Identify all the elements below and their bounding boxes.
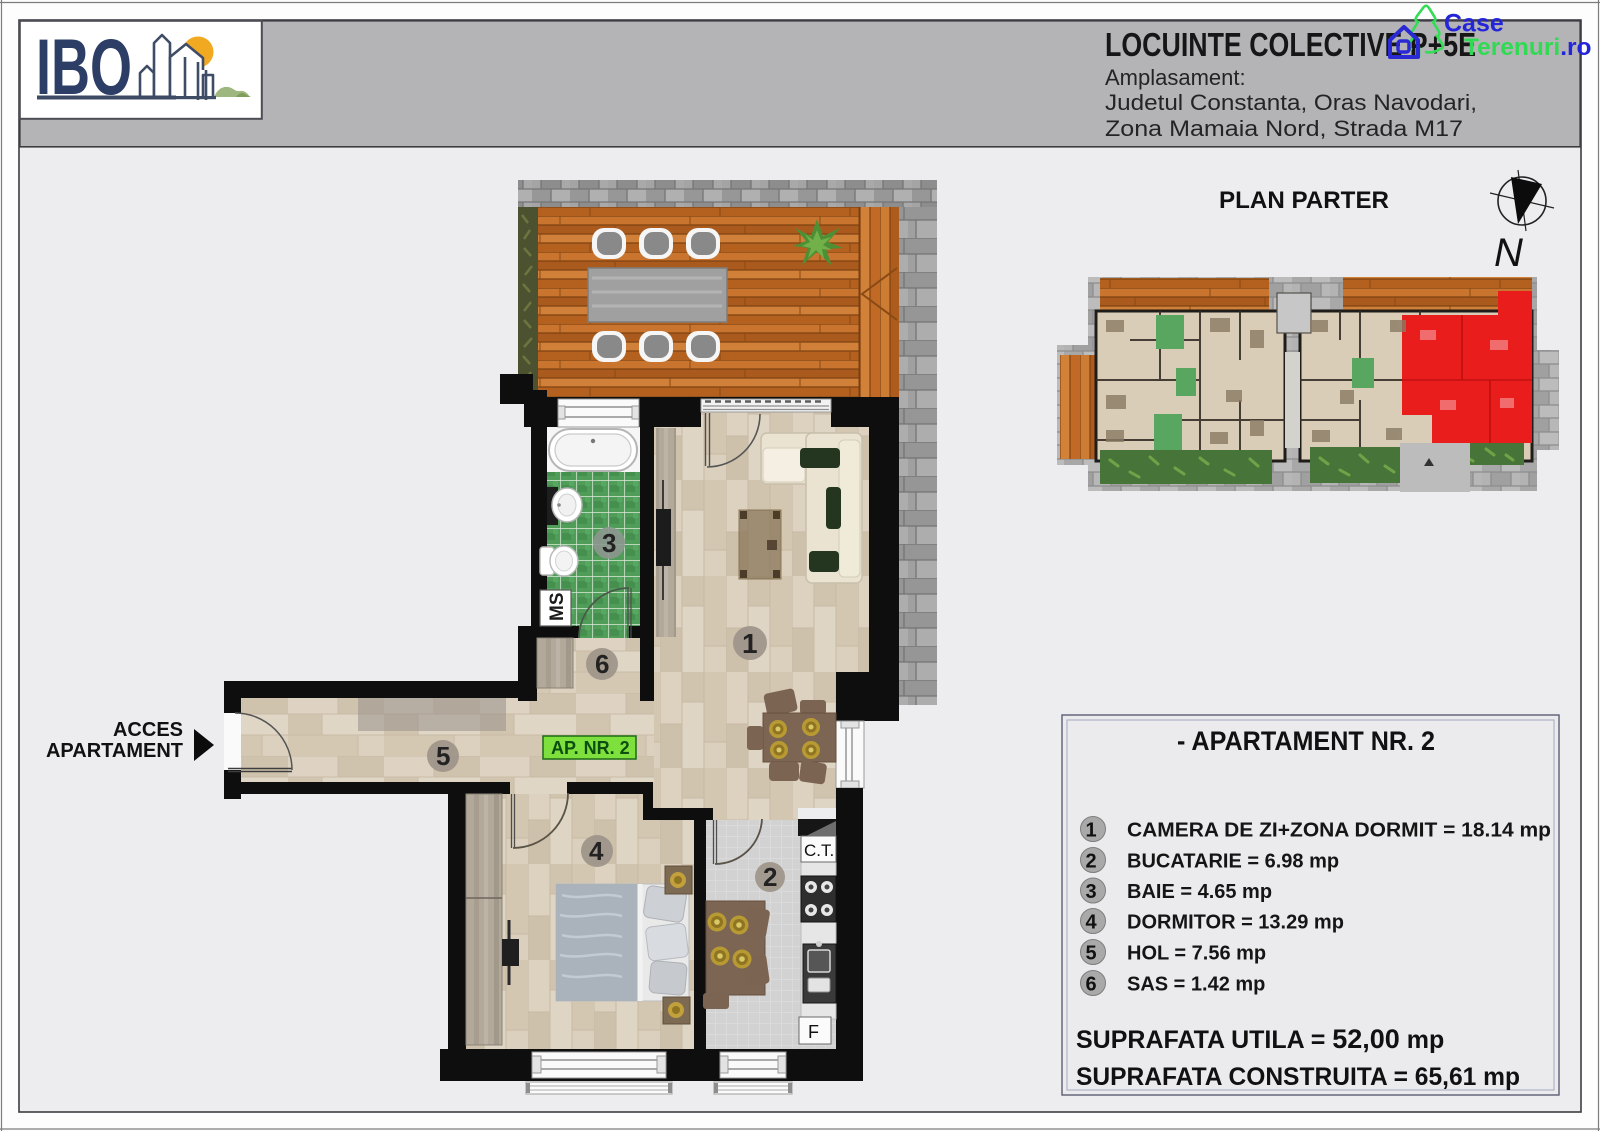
svg-text:AP. NR. 2: AP. NR. 2 [551, 738, 630, 758]
svg-text:PLAN PARTER: PLAN PARTER [1219, 187, 1389, 214]
svg-text:6: 6 [595, 649, 609, 679]
svg-text:CAMERA DE ZI+ZONA DORMIT = 18.: CAMERA DE ZI+ZONA DORMIT = 18.14 mp [1127, 820, 1551, 842]
svg-text:2: 2 [1086, 851, 1097, 873]
svg-text:1: 1 [742, 628, 758, 659]
svg-text:APARTAMENT: APARTAMENT [46, 740, 183, 762]
svg-text:2: 2 [763, 862, 777, 892]
svg-text:SUPRAFATA CONSTRUITA = 65,61 m: SUPRAFATA CONSTRUITA = 65,61 mp [1076, 1063, 1520, 1091]
svg-text:SAS = 1.42 mp: SAS = 1.42 mp [1127, 974, 1265, 996]
svg-text:DORMITOR = 13.29 mp: DORMITOR = 13.29 mp [1127, 912, 1344, 934]
svg-text:5: 5 [1086, 943, 1097, 965]
svg-text:- APARTAMENT NR. 2: - APARTAMENT NR. 2 [1177, 726, 1435, 756]
svg-text:4: 4 [589, 836, 604, 866]
svg-text:3: 3 [602, 528, 616, 558]
svg-text:BAIE = 4.65 mp: BAIE = 4.65 mp [1127, 881, 1272, 903]
svg-text:1: 1 [1086, 820, 1097, 842]
svg-text:MS: MS [547, 593, 568, 622]
svg-text:3: 3 [1086, 881, 1097, 903]
svg-text:ACCES: ACCES [113, 719, 183, 741]
svg-text:Zona Mamaia Nord, Strada M17: Zona Mamaia Nord, Strada M17 [1105, 116, 1463, 141]
svg-text:LOCUINTE COLECTIVE P+5E: LOCUINTE COLECTIVE P+5E [1105, 26, 1476, 63]
svg-text:Terenuri.ro: Terenuri.ro [1464, 34, 1592, 61]
svg-text:SUPRAFATA UTILA = 52,00 mp: SUPRAFATA UTILA = 52,00 mp [1076, 1024, 1444, 1054]
svg-text:5: 5 [436, 741, 450, 771]
svg-text:C.T.: C.T. [804, 841, 834, 860]
svg-text:BUCATARIE = 6.98 mp: BUCATARIE = 6.98 mp [1127, 851, 1339, 873]
svg-text:4: 4 [1086, 912, 1098, 934]
svg-text:N: N [1494, 231, 1523, 275]
svg-text:Judetul Constanta, Oras Navoda: Judetul Constanta, Oras Navodari, [1105, 90, 1477, 115]
svg-text:Amplasament:: Amplasament: [1105, 65, 1246, 90]
svg-text:F: F [808, 1022, 819, 1042]
svg-text:HOL = 7.56 mp: HOL = 7.56 mp [1127, 943, 1266, 965]
svg-text:6: 6 [1086, 974, 1097, 996]
